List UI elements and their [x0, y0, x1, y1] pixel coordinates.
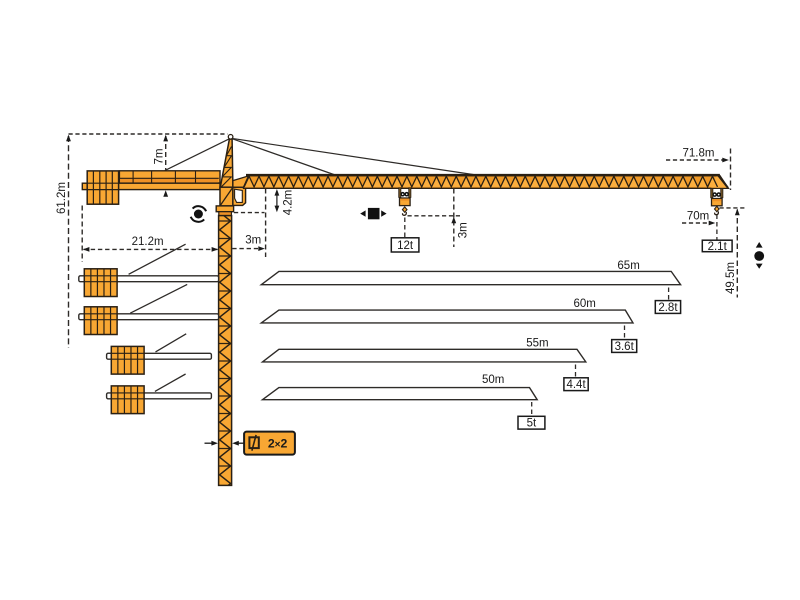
svg-text:2.1t: 2.1t — [708, 241, 728, 253]
svg-text:7m: 7m — [153, 149, 165, 165]
svg-text:3m: 3m — [457, 222, 469, 238]
svg-text:3.6t: 3.6t — [615, 341, 635, 353]
svg-text:50m: 50m — [482, 374, 504, 386]
svg-text:71.8m: 71.8m — [683, 148, 715, 160]
svg-text:4.2m: 4.2m — [282, 190, 294, 216]
svg-text:5t: 5t — [527, 418, 537, 430]
svg-text:21.2m: 21.2m — [132, 236, 164, 248]
svg-text:70m: 70m — [687, 211, 709, 223]
svg-text:4.4t: 4.4t — [566, 379, 586, 391]
svg-text:49.5m: 49.5m — [725, 262, 737, 294]
svg-text:61.2m: 61.2m — [56, 182, 68, 214]
svg-text:60m: 60m — [574, 298, 596, 310]
svg-text:12t: 12t — [397, 240, 414, 252]
svg-text:3m: 3m — [245, 235, 261, 247]
svg-text:2×2: 2×2 — [268, 437, 288, 451]
svg-text:2.8t: 2.8t — [658, 302, 678, 314]
svg-text:65m: 65m — [617, 260, 639, 272]
svg-text:55m: 55m — [526, 338, 548, 350]
